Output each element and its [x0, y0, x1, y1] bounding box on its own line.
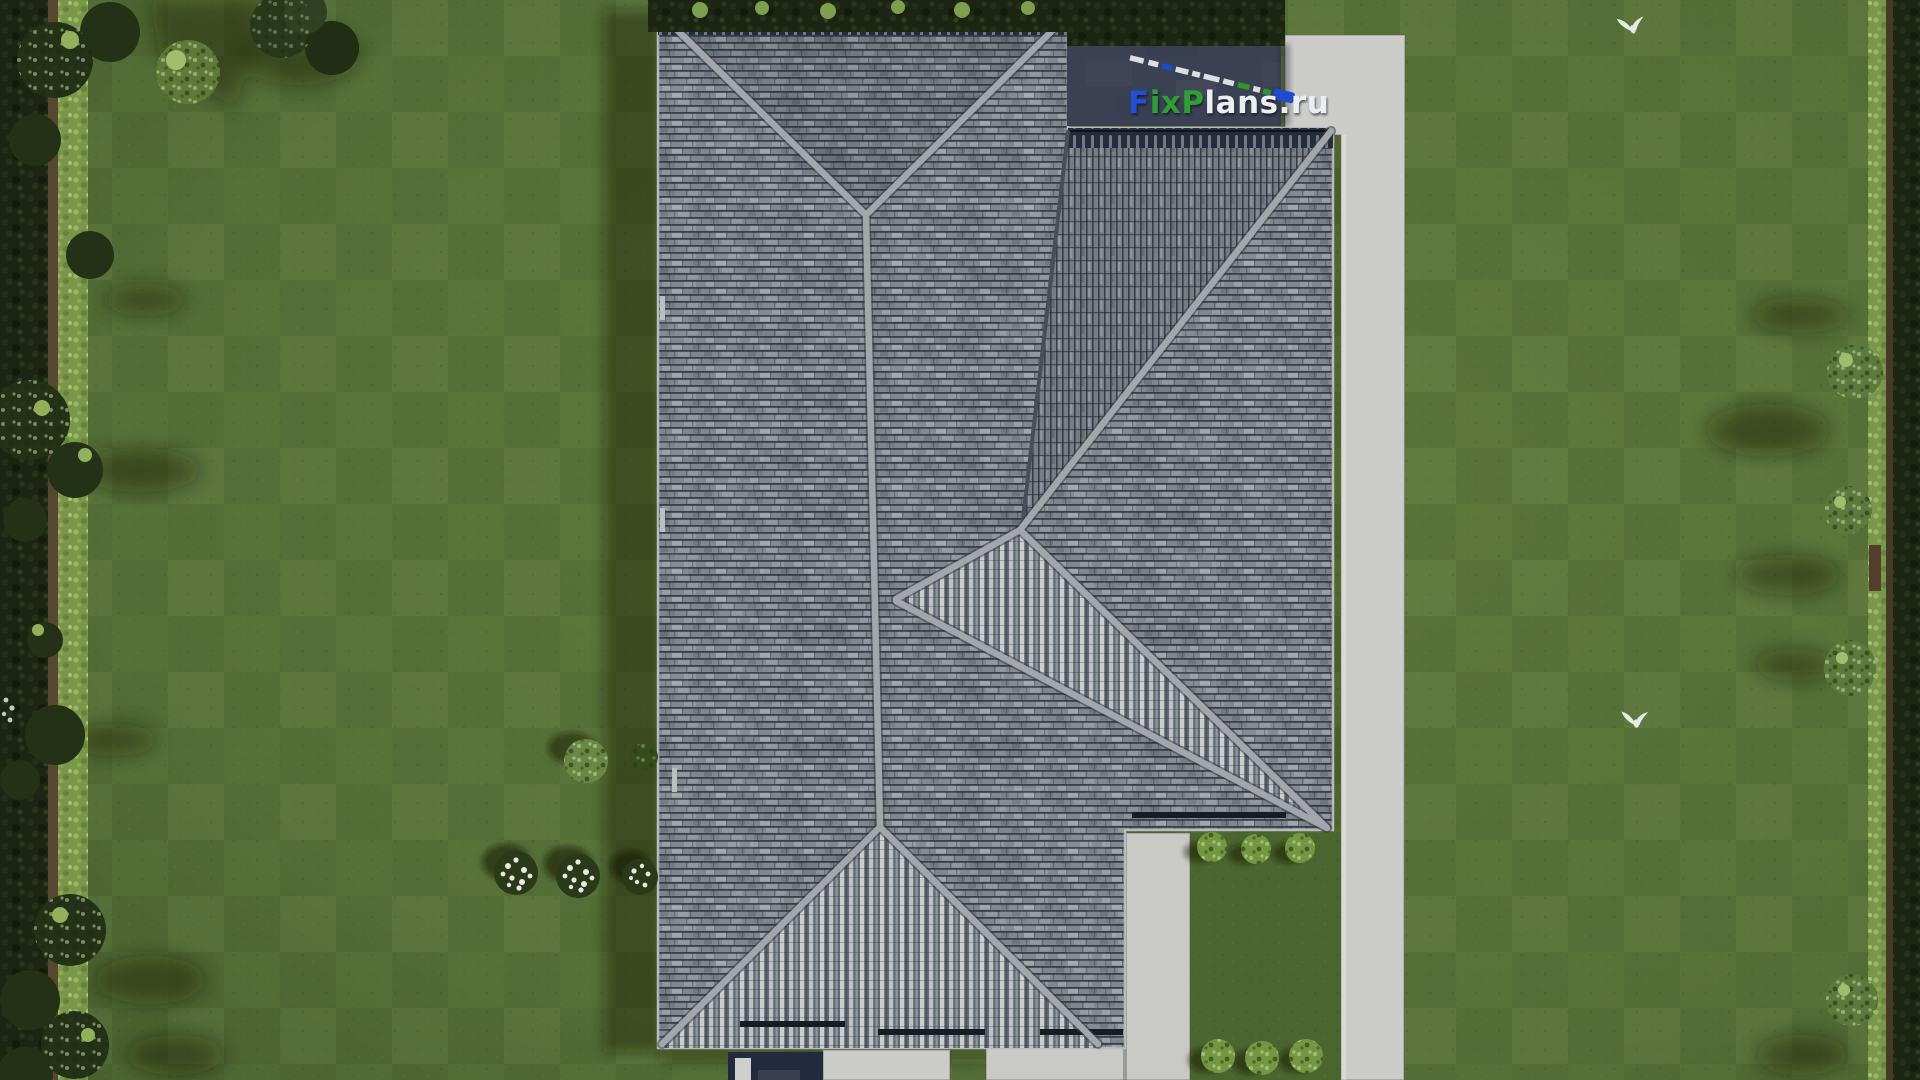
vignette — [0, 0, 1920, 1080]
scene-canvas — [0, 0, 1920, 1080]
watermark-domain: .ru — [1279, 85, 1330, 121]
watermark-letter-p: P — [1181, 85, 1204, 121]
watermark-letters-ix: ix — [1150, 85, 1182, 121]
fixplans-watermark: FixPlans.ru — [1128, 88, 1358, 119]
watermark-letters-lans: lans — [1205, 85, 1279, 121]
aerial-render-scene: FixPlans.ru — [0, 0, 1920, 1080]
watermark-letter-f: F — [1128, 85, 1150, 121]
